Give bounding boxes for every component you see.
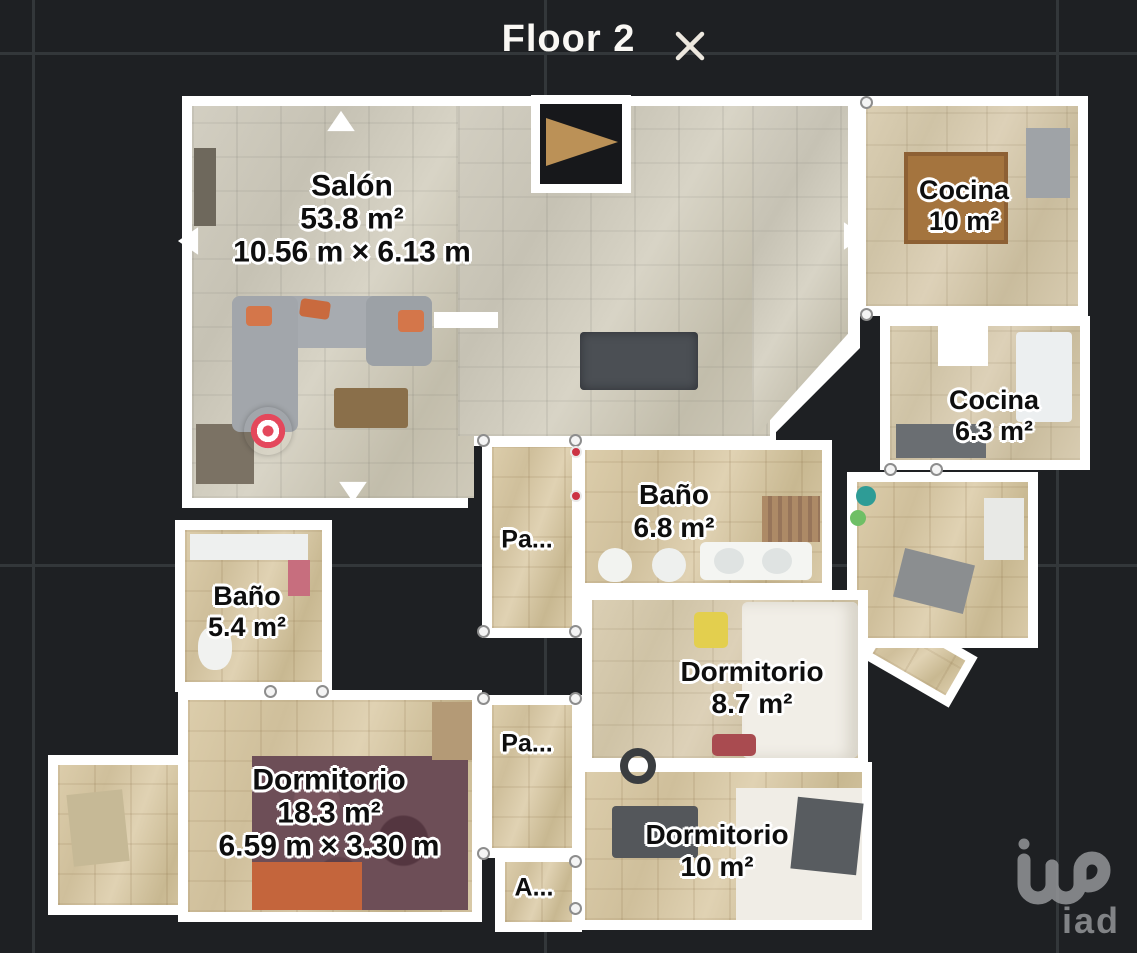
- bidet: [652, 548, 686, 582]
- washing-machine: [984, 498, 1024, 560]
- blanket: [712, 734, 756, 756]
- wall-handle[interactable]: [569, 625, 582, 638]
- appliance: [1026, 128, 1070, 198]
- pillow: [694, 612, 728, 648]
- wall-point-marker[interactable]: [570, 490, 582, 502]
- stair-direction-icon: [546, 112, 618, 172]
- dining-table: [580, 332, 698, 390]
- bath-mat: [762, 496, 820, 542]
- blanket: [252, 862, 362, 910]
- coffee-table: [334, 388, 408, 428]
- bed: [742, 602, 858, 758]
- clutter: [856, 486, 876, 506]
- wardrobe: [432, 702, 472, 760]
- iad-logo-text: iad: [1062, 900, 1120, 942]
- wall-handle[interactable]: [477, 692, 490, 705]
- room-pasillo-2[interactable]: [492, 705, 572, 848]
- furniture-shelf: [194, 148, 216, 226]
- wall-handle[interactable]: [860, 96, 873, 109]
- wall-handle[interactable]: [930, 463, 943, 476]
- wall-stub: [434, 312, 498, 328]
- sink-basin: [714, 548, 744, 574]
- toilet: [598, 548, 632, 582]
- clutter: [850, 510, 866, 526]
- iad-logo: iad: [1002, 836, 1128, 944]
- wall-handle[interactable]: [477, 625, 490, 638]
- wheel-object: [620, 748, 656, 784]
- grid-line: [32, 0, 35, 953]
- kitchen-counter: [896, 424, 986, 458]
- wall-handle[interactable]: [569, 902, 582, 915]
- clutter: [612, 806, 698, 858]
- wall-handle[interactable]: [569, 855, 582, 868]
- bathroom-counter: [190, 534, 308, 560]
- wall-handle[interactable]: [264, 685, 277, 698]
- kitchen-island: [904, 152, 1008, 244]
- close-icon[interactable]: [668, 24, 712, 68]
- wall-segment: [938, 318, 988, 366]
- floor-plan-viewer: Floor 2: [0, 0, 1137, 953]
- stairwell-notch: [540, 104, 622, 184]
- fridge: [1016, 332, 1072, 422]
- sink-basin: [762, 548, 792, 574]
- wall-handle[interactable]: [884, 463, 897, 476]
- wall-handle[interactable]: [860, 308, 873, 321]
- laundry-basket: [288, 560, 310, 596]
- position-marker[interactable]: [244, 407, 292, 455]
- wall-handle[interactable]: [477, 847, 490, 860]
- blanket: [790, 797, 863, 876]
- toilet: [198, 626, 232, 670]
- floor-title: Floor 2: [0, 18, 1137, 61]
- cushion: [398, 310, 424, 332]
- room-armario[interactable]: [505, 862, 572, 922]
- room-pasillo-1[interactable]: [492, 447, 572, 628]
- clutter: [66, 789, 129, 866]
- room-salon-open-area[interactable]: [752, 106, 848, 436]
- wall-handle[interactable]: [316, 685, 329, 698]
- wall-handle[interactable]: [477, 434, 490, 447]
- wall-point-marker[interactable]: [570, 446, 582, 458]
- wall-handle[interactable]: [569, 692, 582, 705]
- cushion: [246, 306, 272, 326]
